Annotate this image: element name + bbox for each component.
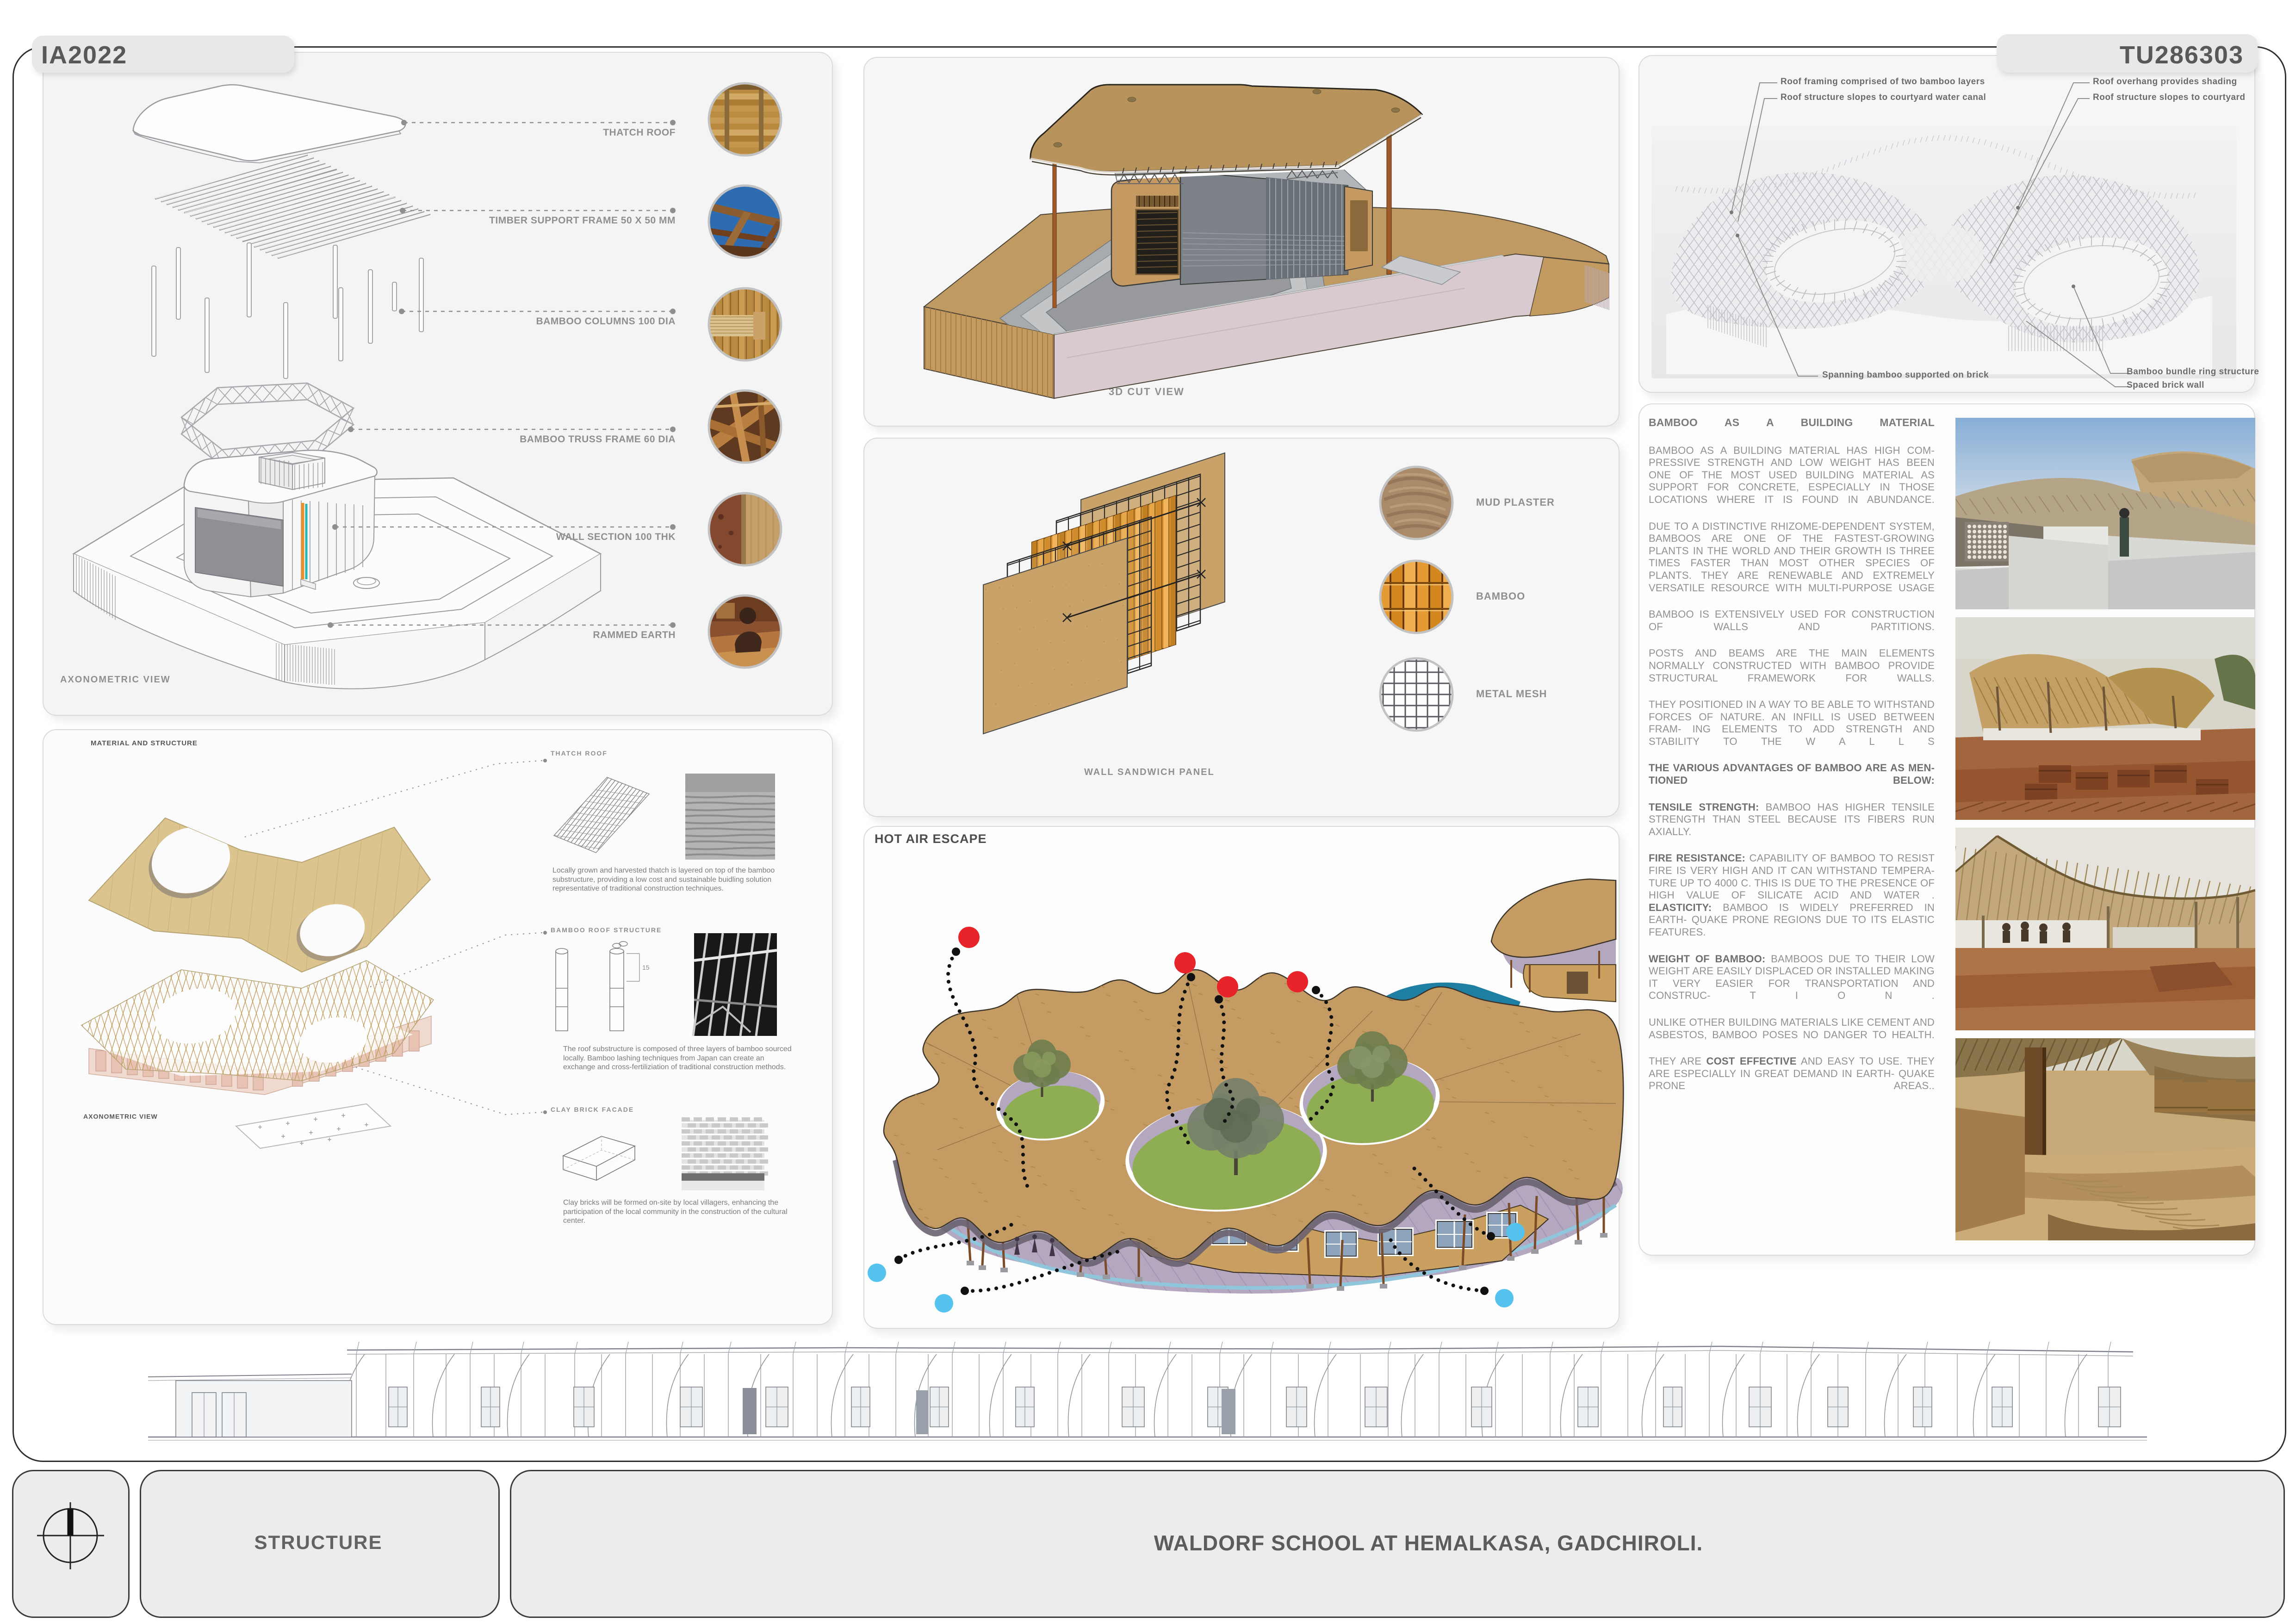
svg-text:15: 15 bbox=[642, 964, 650, 971]
